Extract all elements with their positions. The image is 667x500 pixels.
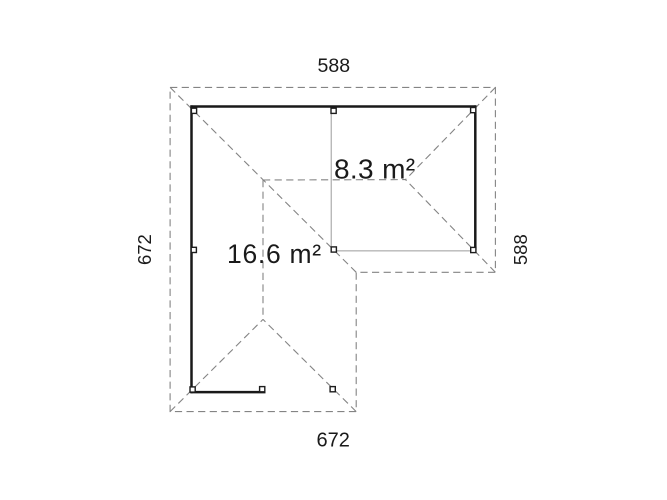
svg-text:8.3 m²: 8.3 m²: [334, 154, 415, 185]
svg-text:588: 588: [318, 55, 351, 77]
svg-text:588: 588: [510, 234, 531, 265]
svg-text:16.6 m²: 16.6 m²: [227, 239, 322, 269]
svg-text:672: 672: [317, 430, 350, 452]
svg-text:672: 672: [134, 234, 155, 265]
